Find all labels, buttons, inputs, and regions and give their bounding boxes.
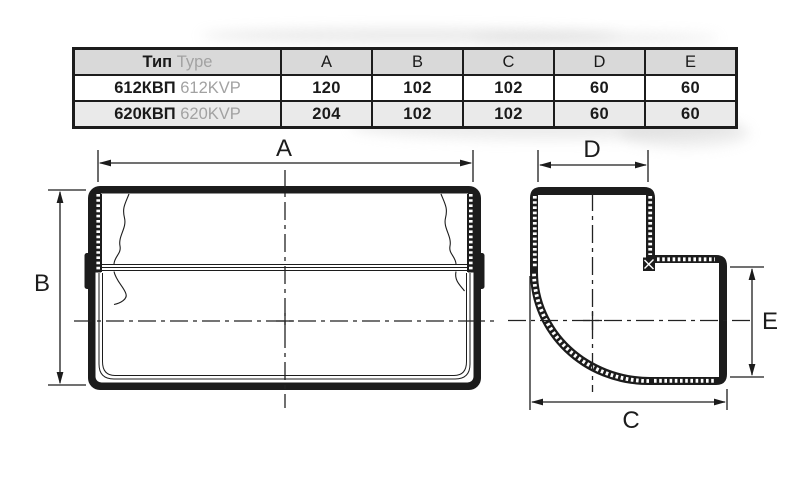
model-ru: 620КВП	[114, 105, 175, 123]
model-cell: 612КВП 612KVP	[74, 75, 282, 101]
col-header-A: A	[281, 49, 372, 76]
model-ru: 612КВП	[114, 79, 175, 97]
dim-label-C: C	[622, 407, 639, 434]
table-row-612kvp: 612КВП 612KVP 120 102 102 60 60	[74, 75, 737, 101]
value-B: 102	[372, 101, 463, 128]
value-E: 60	[645, 101, 737, 128]
arrowhead	[460, 160, 472, 167]
type-label-en: Type	[177, 53, 213, 71]
dimension-D: D	[538, 136, 648, 182]
col-header-C: C	[463, 49, 554, 76]
type-header-cell: Тип Type	[74, 49, 282, 76]
socket-hatch-left	[96, 194, 102, 273]
value-C: 102	[463, 101, 554, 128]
arrowhead	[531, 399, 543, 406]
front-view: A B	[34, 135, 494, 408]
arrowhead	[635, 162, 647, 169]
dimension-table: Тип Type A B C D E 612КВП 612KVP 120 102…	[72, 47, 738, 129]
col-header-D: D	[554, 49, 645, 76]
value-A: 120	[281, 75, 372, 101]
model-en: 620KVP	[180, 105, 241, 123]
table-header-row: Тип Type A B C D E	[74, 49, 737, 76]
arrowhead	[714, 399, 726, 406]
model-en: 612KVP	[180, 79, 241, 97]
table-row-620kvp: 620КВП 620KVP 204 102 102 60 60	[74, 101, 737, 128]
value-D: 60	[554, 101, 645, 128]
spec-sheet: Тип Type A B C D E 612КВП 612KVP 120 102…	[0, 0, 800, 500]
arrowhead	[99, 160, 111, 167]
col-header-E: E	[645, 49, 737, 76]
value-D: 60	[554, 75, 645, 101]
arrowhead	[57, 372, 64, 384]
col-header-B: B	[372, 49, 463, 76]
arrowhead	[749, 268, 756, 280]
value-A: 204	[281, 101, 372, 128]
value-C: 102	[463, 75, 554, 101]
dim-label-B: B	[34, 270, 50, 297]
dimension-B: B	[34, 190, 86, 385]
model-cell: 620КВП 620KVP	[74, 101, 282, 128]
socket-hatch-right	[468, 194, 474, 273]
value-E: 60	[645, 75, 737, 101]
dim-label-A: A	[276, 135, 292, 162]
elbow-step-block	[643, 258, 655, 272]
dim-label-E: E	[762, 308, 778, 335]
arrowhead	[57, 191, 64, 203]
dimension-E: E	[730, 267, 778, 377]
elbow-view: D E	[508, 136, 778, 434]
dim-label-D: D	[583, 136, 600, 163]
type-label-ru: Тип	[143, 53, 173, 71]
arrowhead	[749, 364, 756, 376]
arrowhead	[539, 162, 551, 169]
value-B: 102	[372, 75, 463, 101]
